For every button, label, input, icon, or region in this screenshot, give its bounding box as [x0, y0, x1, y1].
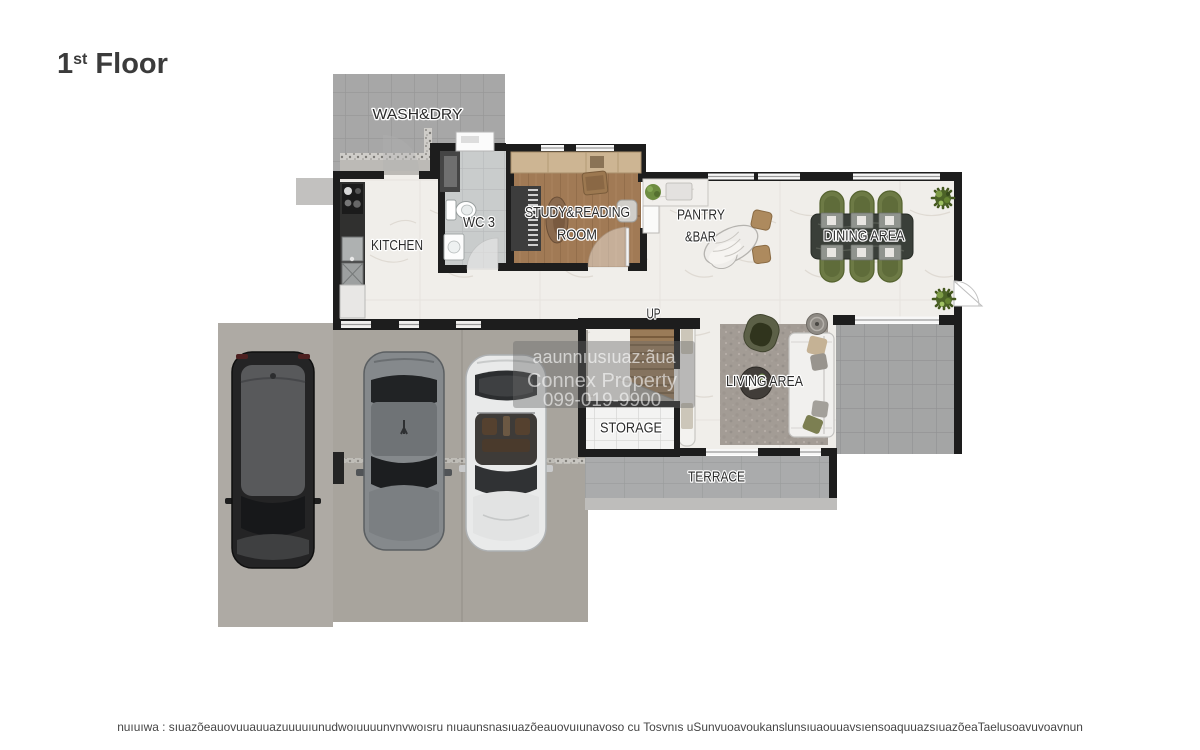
- svg-text:PANTRY: PANTRY: [677, 207, 725, 224]
- svg-text:&BAR: &BAR: [685, 229, 716, 246]
- svg-text:aaunnıusıuaz:ãua: aaunnıusıuaz:ãua: [532, 347, 676, 367]
- svg-text:TERRACE: TERRACE: [688, 469, 745, 486]
- svg-text:STUDY&READING: STUDY&READING: [525, 204, 630, 221]
- svg-text:KITCHEN: KITCHEN: [371, 237, 423, 254]
- svg-text:nuıuıwa : sıuazõeauovuuauuazuu: nuıuıwa : sıuazõeauovuuauuazuuuuıunudwoı…: [117, 720, 1083, 734]
- svg-text:WC 3: WC 3: [463, 214, 495, 231]
- svg-text:WASH&DRY: WASH&DRY: [373, 106, 463, 123]
- svg-text:Connex Property: Connex Property: [527, 370, 677, 392]
- svg-text:STORAGE: STORAGE: [600, 420, 662, 437]
- svg-text:099-019-9900: 099-019-9900: [543, 390, 661, 411]
- svg-text:DINING AREA: DINING AREA: [824, 228, 905, 245]
- svg-text:ROOM: ROOM: [557, 227, 597, 244]
- svg-text:UP: UP: [647, 306, 661, 323]
- svg-text:LIVING AREA: LIVING AREA: [726, 373, 803, 390]
